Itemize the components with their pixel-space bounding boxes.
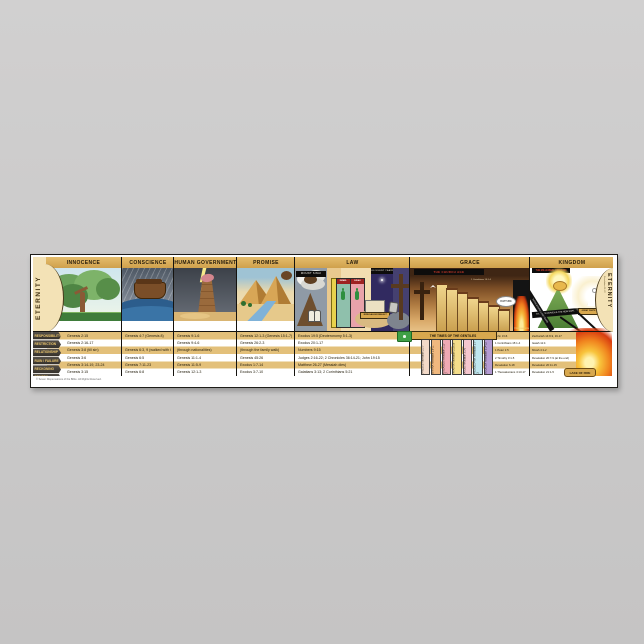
israel-kings-card: ISRAEL: [336, 278, 351, 328]
scripture-ref: 1 Peter 1:5: [495, 347, 528, 354]
scene-human-government: [173, 268, 237, 332]
scripture-ref: Zechariah 14:8-9, 16-17: [532, 332, 575, 339]
tree-foliage: [96, 278, 120, 300]
tower-of-babel: [192, 278, 222, 314]
egypt-sky: [237, 268, 295, 321]
eternity-left-label: ETERNITY: [35, 268, 42, 320]
church-age-text: SMYRNA Revelation 2:8-11: [432, 340, 436, 375]
scripture-ref: Genesis 6:5: [125, 354, 171, 361]
row-label: RESPONSIBILITY: [33, 332, 61, 340]
scripture-ref: [125, 339, 171, 346]
dispensations-poster: INNOCENCE CONSCIENCE HUMAN GOVERNMENT PR…: [30, 254, 618, 388]
law-tablet: [314, 310, 321, 322]
row-label: RECKONING: [33, 365, 61, 373]
scripture-ref: Genesis 2:16-17: [67, 339, 119, 346]
scripture-ref: Genesis 3:8 (till sin): [67, 347, 119, 354]
scripture-ref: Genesis 45:26: [240, 354, 292, 361]
babel-sky: [174, 268, 237, 321]
scripture-ref: Genesis 11:5-9: [177, 361, 234, 368]
church-age-strips: EPHESUS Revelation 2:1-7 SMYRNA Revelati…: [421, 339, 493, 375]
church-age-step: [498, 309, 510, 332]
church-age-strip: SARDIS Revelation 3:1-6: [463, 339, 472, 375]
eternity-right-label: ETERNITY: [606, 273, 612, 319]
scripture-ref: Exodus 19:5 (Deuteronomy 5:1-3): [298, 332, 407, 339]
tower-top-debris: [201, 273, 215, 283]
wall-background: INNOCENCE CONSCIENCE HUMAN GOVERNMENT PR…: [0, 0, 644, 644]
scripture-ref: Judges 2:16-22; 2 Chronicles 36:14-21; J…: [298, 354, 407, 361]
rolled-stone: [388, 301, 398, 313]
palm-tree: [241, 301, 246, 306]
bethlehem-star: [381, 279, 383, 281]
refs-human-government: Genesis 9:1-6Genesis 9:4-6(through natio…: [177, 332, 234, 376]
church-age-text: EPHESUS Revelation 2:1-7: [422, 340, 426, 375]
refs-conscience: Genesis 4:7 (Genesis 8)Genesis 6:3, 9 (w…: [125, 332, 171, 376]
church-age-note: 1 Corinthians 15:1-4: [466, 277, 496, 282]
church-age-text: THYATIRA Revelation 2:18-29: [453, 340, 457, 375]
scripture-ref: Genesis 9:4-6: [177, 339, 234, 346]
flood-wave-front: [122, 306, 174, 321]
scripture-ref: Exodus 20:1-17: [298, 339, 407, 346]
jerusalem-banner: JERUSALEM REBUILT: [360, 312, 390, 319]
scripture-ref: (through nationalities): [177, 347, 234, 354]
copyright-text: © Seven Dispensations of the Bible. All …: [33, 378, 102, 381]
scripture-ref: Genesis 7:11-23: [125, 361, 171, 368]
scripture-ref: Revelation 20:7-9 (at the end): [532, 354, 575, 361]
scripture-ref: John 3:16: [495, 332, 528, 339]
tribulation-column: TRIBULATION: [513, 280, 530, 332]
noahs-ark: [134, 282, 166, 299]
poster-footer: © Seven Dispensations of the Bible. All …: [33, 376, 613, 383]
grace-cross-vertical: [420, 282, 424, 320]
church-age-text: PHILADELPHIA Revelation 3:7-13: [474, 340, 481, 375]
refs-law: Exodus 19:5 (Deuteronomy 5:1-3)Exodus 20…: [298, 332, 407, 376]
church-age-strip: LAODICEA Revelation 3:14-22: [484, 339, 493, 375]
refs-innocence: Genesis 2:15Genesis 2:16-17Genesis 3:8 (…: [67, 332, 119, 376]
church-age-text: PERGAMOS Revelation 2:12-17: [443, 340, 450, 375]
sand-dune: [180, 313, 210, 319]
cross-horizontal: [391, 284, 409, 288]
church-age-strip: SMYRNA Revelation 2:8-11: [431, 339, 440, 375]
scene-promise: [236, 268, 295, 332]
scripture-ref: Genesis 2:15: [67, 332, 119, 339]
golden-city: [553, 281, 567, 291]
row-label: RESTRICTION: [33, 340, 61, 348]
scripture-ref: Micah 4:1-2: [532, 347, 575, 354]
scripture-ref: Genesis 3:15: [67, 369, 119, 376]
scripture-ref: Genesis 12:1-3: [177, 369, 234, 376]
row-label-gutter: RESPONSIBILITYRESTRICTIONRELATIONSHIPRUI…: [33, 332, 61, 376]
scene-conscience: [121, 268, 174, 332]
scripture-ref: Genesis 11:1-4: [177, 354, 234, 361]
palm-tree: [248, 303, 252, 307]
church-age-text: LAODICEA Revelation 3:14-22: [485, 340, 489, 375]
scripture-ref: 1 Thessalonians 4:13-17: [495, 369, 528, 376]
scripture-ref: Galatians 3:13; 2 Corinthians 5:21: [298, 369, 407, 376]
scripture-ref: Revelation 6-18: [495, 361, 528, 368]
table-top-line: [33, 331, 613, 332]
church-age-strip: EPHESUS Revelation 2:1-7: [421, 339, 430, 375]
judah-card-label: JUDAH: [351, 279, 364, 284]
israel-card-label: ISRAEL: [337, 279, 350, 284]
silent-years-banner: 400 SILENT YEARS: [371, 268, 393, 274]
judah-figure: [355, 291, 359, 300]
scene-law: MOUNT SINAI ISRAEL JUDAH JERUSALEM REBUI…: [294, 268, 410, 332]
scripture-ref: 2 Timothy 3:1-5: [495, 354, 528, 361]
scripture-ref: Matthew 26-27 (Messiah dies): [298, 361, 407, 368]
poster-content: INNOCENCE CONSCIENCE HUMAN GOVERNMENT PR…: [33, 257, 613, 383]
rapture-cloud: RAPTURE: [496, 296, 516, 307]
church-age-strip: THYATIRA Revelation 2:18-29: [452, 339, 461, 375]
scripture-ref: Genesis 3:6: [67, 354, 119, 361]
tree-trunk: [80, 292, 85, 314]
row-label: RUIN / FAILURE: [33, 357, 61, 365]
refs-grace: John 3:161 Corinthians 15:1-41 Peter 1:5…: [495, 332, 528, 376]
scripture-ref: Genesis 9:1-6: [177, 332, 234, 339]
scripture-ref: Genesis 4:7 (Genesis 8): [125, 332, 171, 339]
storm-sky: [122, 268, 174, 321]
scripture-ref: Genesis 3:14-19, 23-24: [67, 361, 119, 368]
tribulation-label: TRIBULATION: [513, 327, 530, 331]
cross-vertical: [399, 274, 403, 320]
eagle: [281, 271, 292, 280]
ark-roof: [136, 279, 162, 284]
scripture-ref: Exodus 3:7-10: [240, 369, 292, 376]
eternity-right-note: Revelation 21-22: [603, 276, 605, 326]
scripture-ref: Exodus 1:7-14: [240, 361, 292, 368]
scripture-ref: Isaiah 11:4: [532, 339, 575, 346]
church-age-strip: PHILADELPHIA Revelation 3:7-13: [473, 339, 482, 375]
scripture-ref: (through the family walk): [240, 347, 292, 354]
scripture-ref: 1 Corinthians 15:1-4: [495, 339, 528, 346]
scripture-ref: Numbers 9:15: [298, 347, 407, 354]
refs-promise: Genesis 12:1-3 (Genesis 15:1-7)Genesis 2…: [240, 332, 292, 376]
church-insert-marker: [397, 331, 412, 342]
church-age-text: SARDIS Revelation 3:1-6: [464, 340, 468, 375]
scene-grace: THE CHURCH AGE 1 Corinthians 15:1-4 RAPT…: [409, 268, 530, 332]
scripture-ref: Genesis 6:8: [125, 369, 171, 376]
israel-figure: [341, 291, 345, 300]
grace-cross-horizontal: [414, 290, 430, 294]
church-age-strip: PERGAMOS Revelation 2:12-17: [442, 339, 451, 375]
scripture-ref: Genesis 6:3, 9 (walked with God): [125, 347, 171, 354]
sinai-banner: MOUNT SINAI: [296, 271, 326, 277]
scripture-ref: Genesis 12:1-3 (Genesis 15:1-7): [240, 332, 292, 339]
scripture-ref: Genesis 26:2-3: [240, 339, 292, 346]
church-age-banner: THE CHURCH AGE: [414, 269, 484, 275]
row-label: RELATIONSHIP: [33, 349, 61, 357]
lake-of-fire-label: LAKE OF FIRE: [564, 368, 596, 377]
